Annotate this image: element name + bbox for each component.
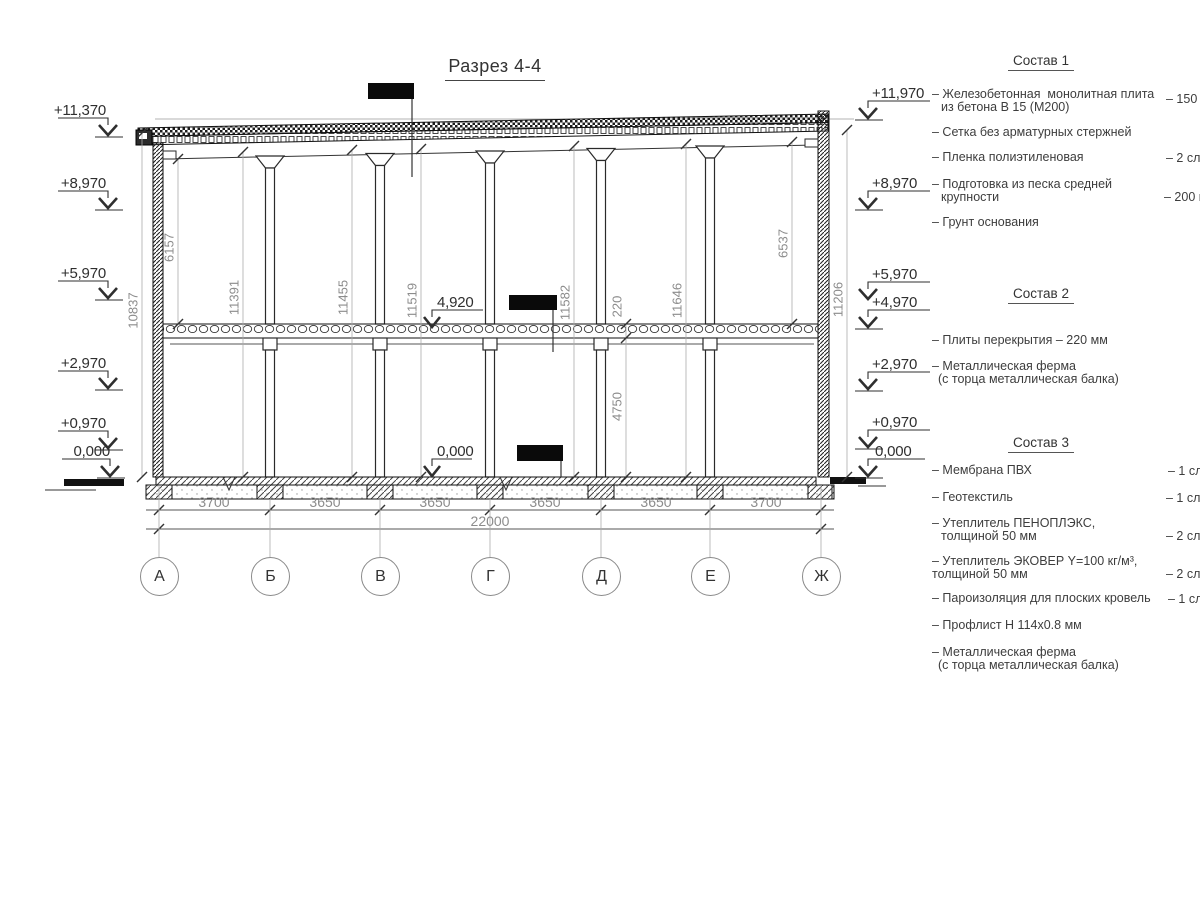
- vdim-11391: 11391: [227, 263, 242, 333]
- comp3-item1: – Мембрана ПВХ: [932, 464, 1032, 477]
- level-right-0970: +0,970: [872, 414, 917, 431]
- axis-bubble-d: Д: [582, 557, 621, 596]
- comp2-item2-line2: (с торца металлическая балка): [938, 373, 1119, 386]
- comp1-item4-line2: крупности: [941, 191, 999, 204]
- drawing-sheet: { "title": "Разрез 4-4", "left_levels": …: [0, 0, 1200, 900]
- level-left-2970: +2,970: [34, 355, 106, 372]
- left-wall: [153, 143, 176, 477]
- comp3-item4-value: – 2 сло: [1166, 567, 1200, 581]
- level-left-5970: +5,970: [34, 265, 106, 282]
- comp1-item1-line2: из бетона В 15 (М200): [941, 101, 1069, 114]
- upper-columns: [256, 146, 724, 324]
- vdim-6537: 6537: [776, 209, 791, 279]
- lower-columns: [263, 338, 717, 477]
- level-left-0000: 0,000: [38, 443, 110, 460]
- axis-bubble-e: Е: [691, 557, 730, 596]
- comp3-item3-line2: толщиной 50 мм: [941, 530, 1037, 543]
- level-right-2970: +2,970: [872, 356, 917, 373]
- comp3-item3-value: – 2 сло: [1166, 529, 1200, 543]
- level-left-0970: +0,970: [34, 415, 106, 432]
- comp2-header: Состав 2: [1008, 286, 1074, 304]
- comp3-item2: – Геотекстиль: [932, 491, 1013, 504]
- level-left-8970: +8,970: [34, 175, 106, 192]
- vdim-11646: 11646: [670, 266, 685, 336]
- level-right-5970: +5,970: [872, 266, 917, 283]
- comp1-item3-value: – 2 сло: [1166, 151, 1200, 165]
- axis-bubble-zh: Ж: [802, 557, 841, 596]
- level-right-4970: +4,970: [872, 294, 917, 311]
- vdim-11455: 11455: [336, 263, 351, 333]
- comp1-header: Состав 1: [1008, 53, 1074, 71]
- level-left-11370: +11,370: [34, 102, 106, 119]
- callout-flags: [368, 83, 563, 477]
- axis-bubble-g: Г: [471, 557, 510, 596]
- comp1-item3: – Пленка полиэтиленовая: [932, 151, 1084, 164]
- comp3-item6: – Профлист Н 114х0.8 мм: [932, 619, 1082, 632]
- comp1-item4-value: – 200 м: [1164, 190, 1200, 204]
- level-right-11970: +11,970: [872, 85, 924, 102]
- level-internal-4920: 4,920: [437, 294, 474, 311]
- left-landing: [45, 479, 124, 490]
- vdim-220: 220: [610, 272, 625, 342]
- vdim-11582: 11582: [558, 268, 573, 338]
- comp1-item5: – Грунт основания: [932, 216, 1039, 229]
- vdim-4750: 4750: [610, 372, 625, 442]
- comp3-item2-value: – 1 сло: [1166, 491, 1200, 505]
- axis-bubble-a: А: [140, 557, 179, 596]
- level-right-0000: 0,000: [875, 443, 912, 460]
- comp3-item5: – Пароизоляция для плоских кровель: [932, 592, 1151, 605]
- vdim-10837: 10837: [126, 276, 141, 346]
- comp3-item5-value: – 1 сло: [1168, 592, 1200, 606]
- level-internal-0000: 0,000: [437, 443, 474, 460]
- comp1-item1-value: – 150 м: [1166, 92, 1200, 106]
- dim-span-d-e: 3650: [621, 494, 691, 510]
- dim-span-g-d: 3650: [510, 494, 580, 510]
- comp3-item7-line2: (с торца металлическая балка): [938, 659, 1119, 672]
- dim-total: 22000: [455, 513, 525, 529]
- dim-span-e-zh: 3700: [731, 494, 801, 510]
- drawing-title: Разрез 4-4: [445, 56, 545, 81]
- comp2-item1: – Плиты перекрытия – 220 мм: [932, 334, 1108, 347]
- comp3-header: Состав 3: [1008, 435, 1074, 453]
- vdim-11206: 11206: [831, 265, 846, 335]
- dim-span-v-g: 3650: [400, 494, 470, 510]
- axis-bubble-b: Б: [251, 557, 290, 596]
- level-right-8970: +8,970: [872, 175, 917, 192]
- comp1-item2: – Сетка без арматурных стержней: [932, 126, 1131, 139]
- vdim-11519: 11519: [405, 266, 420, 336]
- axis-bubble-v: В: [361, 557, 400, 596]
- comp3-item4-line2: толщиной 50 мм: [932, 568, 1028, 581]
- dim-span-a-b: 3700: [179, 494, 249, 510]
- vdim-6157: 6157: [162, 213, 177, 283]
- right-wall: [805, 111, 829, 477]
- comp3-item1-value: – 1 сло: [1168, 464, 1200, 478]
- dim-span-b-v: 3650: [290, 494, 360, 510]
